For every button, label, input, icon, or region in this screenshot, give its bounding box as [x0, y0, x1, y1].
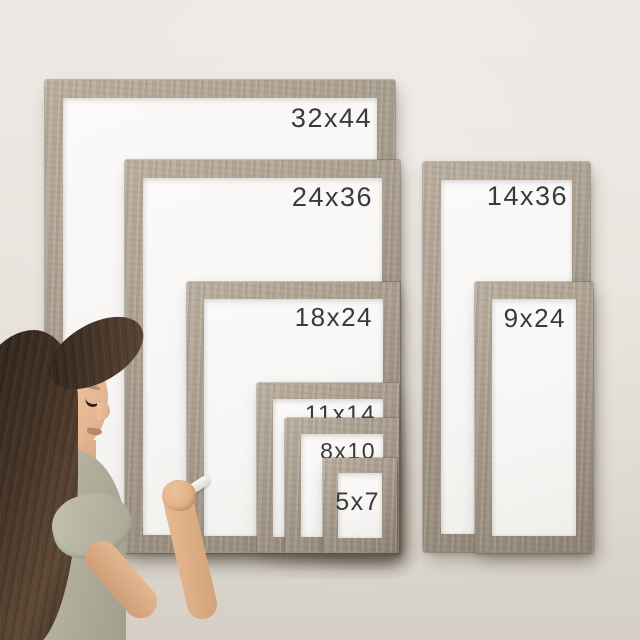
whiteboard-9x24: 9x24	[492, 299, 576, 536]
size-label-9x24: 9x24	[504, 305, 566, 331]
person-hand	[162, 480, 196, 511]
scene: 32x44 24x36 18x24 11x14 8x10 5x7 14x36	[0, 0, 640, 640]
size-label-18x24: 18x24	[295, 304, 373, 330]
frame-9x24: 9x24	[475, 282, 593, 553]
frame-5x7: 5x7	[323, 458, 397, 553]
whiteboard-5x7: 5x7	[338, 473, 382, 538]
person-nose	[97, 402, 110, 420]
size-label-24x36: 24x36	[292, 184, 373, 211]
person	[0, 290, 240, 640]
size-label-32x44: 32x44	[291, 105, 372, 132]
size-label-5x7: 5x7	[335, 490, 380, 515]
size-label-14x36: 14x36	[487, 183, 568, 210]
